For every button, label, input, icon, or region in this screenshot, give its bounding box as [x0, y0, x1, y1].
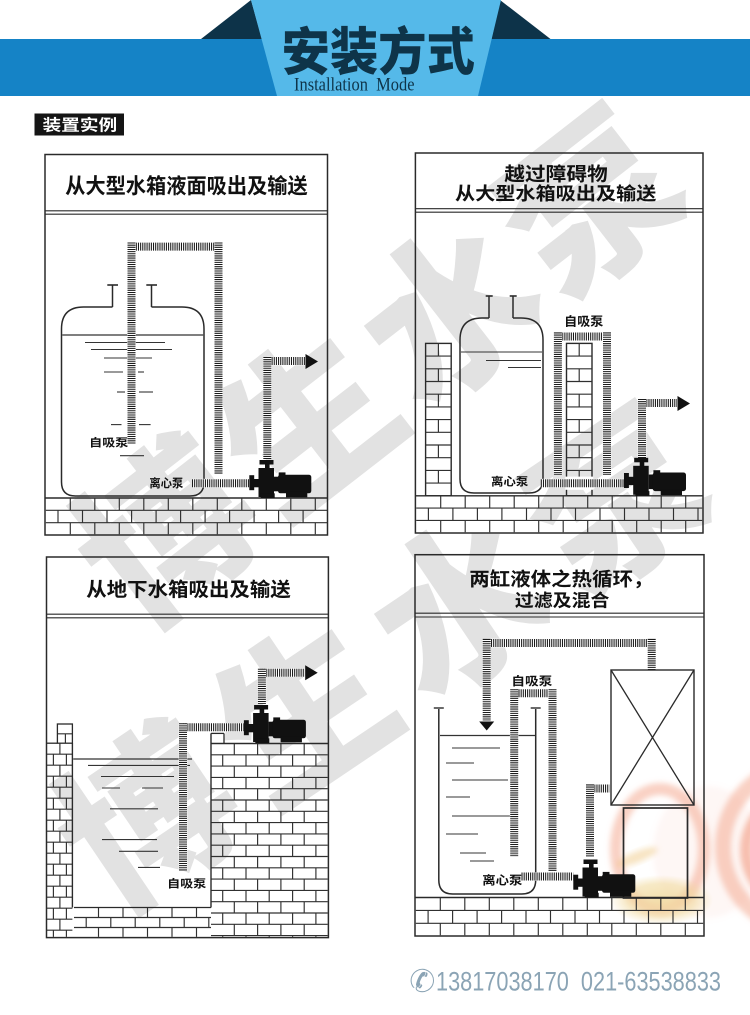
svg-text:Installation Mode: Installation Mode [294, 76, 415, 96]
svg-text:13817038170 021-63538833: 13817038170 021-63538833 [436, 967, 721, 997]
